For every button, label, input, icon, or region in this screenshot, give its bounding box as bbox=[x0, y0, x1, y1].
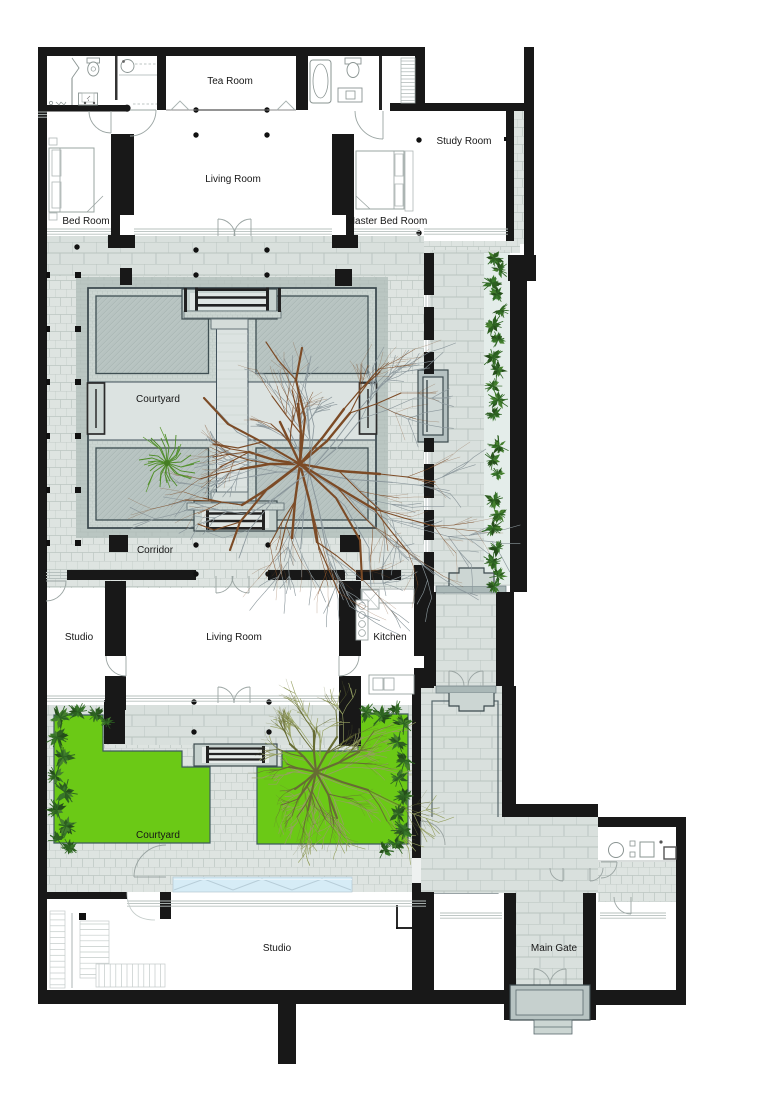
svg-text:Bed Room: Bed Room bbox=[62, 216, 109, 227]
svg-text:Courtyard: Courtyard bbox=[136, 394, 180, 405]
svg-text:Master Bed Room: Master Bed Room bbox=[347, 216, 428, 227]
svg-text:Living Room: Living Room bbox=[206, 632, 262, 643]
svg-text:Main Gate: Main Gate bbox=[531, 943, 578, 954]
svg-text:Courtyard: Courtyard bbox=[136, 830, 180, 841]
svg-text:Kitchen: Kitchen bbox=[373, 632, 406, 643]
svg-text:Corridor: Corridor bbox=[137, 545, 174, 556]
svg-text:Study Room: Study Room bbox=[436, 136, 491, 147]
svg-text:Tea Room: Tea Room bbox=[207, 76, 253, 87]
svg-text:Living Room: Living Room bbox=[205, 174, 261, 185]
svg-text:Studio: Studio bbox=[263, 943, 292, 954]
svg-text:Studio: Studio bbox=[65, 632, 94, 643]
